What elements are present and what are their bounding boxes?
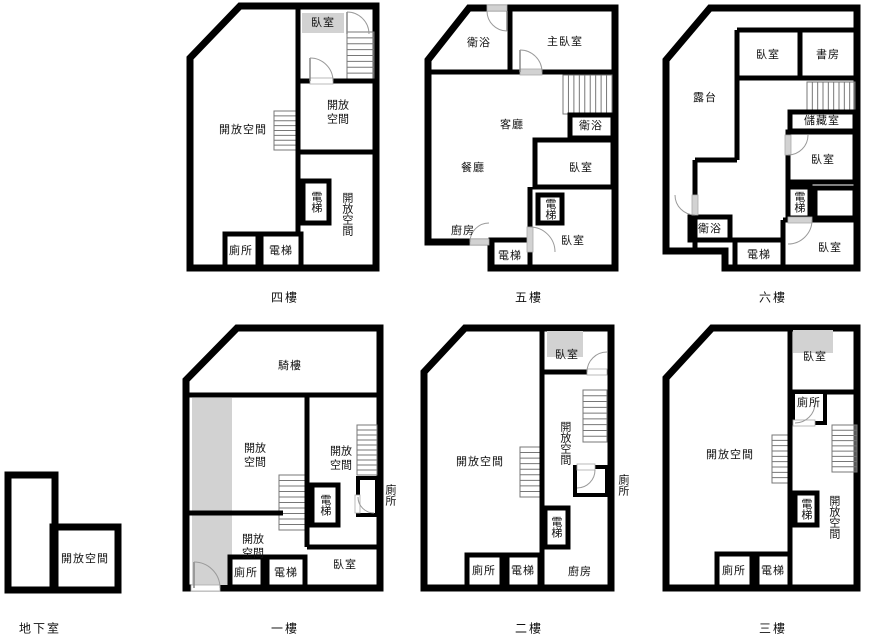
floor-name-6f: 六樓 xyxy=(759,289,787,306)
floorplan-3f-drawing xyxy=(661,323,876,593)
floor-name-1f: 一樓 xyxy=(271,620,299,637)
room-label-bedroom-mid: 臥室 xyxy=(811,153,835,167)
room-label-elevator-shaft: 電梯 xyxy=(799,498,813,520)
rooms-5f xyxy=(491,115,613,268)
room-label-kitchen: 廚房 xyxy=(451,224,475,238)
room-label-open-right-top: 開放空間 xyxy=(325,98,351,126)
room-label-open-right: 開放空間 xyxy=(328,444,354,472)
room-label-toilet-right: 廁所 xyxy=(383,484,397,506)
room-label-elevator: 電梯 xyxy=(269,244,293,258)
floorplan-sheet: 臥室 開放空間 開放空間 電梯 開放空間 廁所 電梯 四樓 xyxy=(0,0,889,643)
room-label-kitchen: 廚房 xyxy=(568,565,592,579)
room-label-toilet: 廁所 xyxy=(229,244,253,258)
room-label-open: 開放空間 xyxy=(61,552,109,566)
room-label-toilet: 廁所 xyxy=(722,564,746,578)
stairs-1f-center xyxy=(279,475,307,530)
stairs-3f-right xyxy=(832,425,857,472)
floorplan-basement: 開放空間 xyxy=(3,470,138,598)
floor-name-basement: 地下室 xyxy=(19,620,61,637)
room-label-bedroom-mid: 臥室 xyxy=(569,161,593,175)
room-label-bedroom-top: 臥室 xyxy=(756,48,780,62)
stairs-4f-topright xyxy=(347,32,374,79)
room-label-open-right: 開放空間 xyxy=(827,495,841,539)
room-label-bath: 衛浴 xyxy=(698,222,722,236)
room-label-terrace: 露台 xyxy=(693,91,717,105)
stairs-4f-center xyxy=(274,111,298,150)
room-label-elevator: 電梯 xyxy=(498,249,522,263)
floorplan-basement-drawing xyxy=(3,470,138,598)
room-label-open-upper: 開放空間 xyxy=(242,441,268,469)
room-label-toilet-top: 廁所 xyxy=(797,396,821,410)
room-label-toilet: 廁所 xyxy=(472,564,496,578)
stairs-6f-right xyxy=(807,82,855,110)
room-label-elevator: 電梯 xyxy=(747,248,771,262)
stairs-2f-right xyxy=(583,390,607,442)
room-label-bedroom: 臥室 xyxy=(333,558,357,572)
floorplan-3f: 臥室 廁所 開放空間 開放空間 電梯 廁所 電梯 xyxy=(661,323,876,593)
stairs-2f-center xyxy=(520,447,542,497)
floorplan-2f-drawing xyxy=(419,323,634,593)
room-label-storage: 儲藏室 xyxy=(804,114,840,128)
room-label-open-left: 開放空間 xyxy=(706,448,754,462)
toilet-right-room xyxy=(358,478,377,515)
room-label-open-right-bottom: 開放空間 xyxy=(340,192,354,236)
room-label-arcade: 騎樓 xyxy=(278,359,302,373)
room-label-bath-top: 衛浴 xyxy=(467,36,491,50)
room-label-bedroom: 臥室 xyxy=(803,350,827,364)
stairs-3f-center xyxy=(772,435,790,483)
room-label-elevator-shaft: 電梯 xyxy=(543,198,557,220)
stairs-1f-right xyxy=(357,425,377,475)
floor-name-5f: 五樓 xyxy=(515,289,543,306)
room-label-elevator-shaft: 電梯 xyxy=(549,516,563,538)
floor-name-3f: 三樓 xyxy=(759,620,787,637)
room-label-elevator-shaft: 電梯 xyxy=(792,191,806,213)
floorplan-5f: 衛浴 主臥室 客廳 餐廳 衛浴 臥室 電梯 廚房 電梯 臥室 xyxy=(423,2,623,272)
floor-name-4f: 四樓 xyxy=(271,289,299,306)
room-label-toilet-right: 廁所 xyxy=(616,474,630,496)
stairs-5f-topright xyxy=(563,75,612,114)
floorplan-6f-drawing xyxy=(661,2,863,272)
room-label-open-left: 開放空間 xyxy=(456,455,504,469)
room-label-bedroom: 臥室 xyxy=(555,348,579,362)
room-label-elevator-shaft: 電梯 xyxy=(318,494,332,516)
room-label-elevator: 電梯 xyxy=(761,564,785,578)
room-label-open-left: 開放空間 xyxy=(219,123,267,137)
room-label-elevator-shaft: 電梯 xyxy=(309,191,323,213)
room-label-toilet: 廁所 xyxy=(234,566,258,580)
floorplan-2f: 臥室 開放空間 廁所 開放空間 電梯 廚房 廁所 電梯 xyxy=(419,323,634,593)
room-label-master-bedroom: 主臥室 xyxy=(547,35,583,49)
floorplan-4f: 臥室 開放空間 開放空間 電梯 開放空間 廁所 電梯 xyxy=(186,2,381,272)
room-label-open-right: 開放空間 xyxy=(558,421,572,465)
room-label-bedroom-bottom: 臥室 xyxy=(561,234,585,248)
floor-name-2f: 二樓 xyxy=(515,620,543,637)
room-label-bedroom-bottom: 臥室 xyxy=(818,241,842,255)
room-label-elevator: 電梯 xyxy=(274,566,298,580)
room-label-bedroom: 臥室 xyxy=(311,16,335,30)
gray-strip xyxy=(192,398,232,585)
room-label-study: 書房 xyxy=(816,48,840,62)
room-label-living: 客廳 xyxy=(500,118,524,132)
room-label-open-lower: 開放空間 xyxy=(240,532,266,560)
floorplan-6f: 露台 臥室 書房 儲藏室 臥室 電梯 衛浴 電梯 臥室 xyxy=(661,2,863,272)
room-label-dining: 餐廳 xyxy=(461,161,485,175)
room-label-bath-right: 衛浴 xyxy=(579,119,603,133)
room-label-elevator: 電梯 xyxy=(511,564,535,578)
floorplan-1f: 騎樓 開放空間 開放空間 開放空間 電梯 廁所 廁所 電梯 臥室 xyxy=(181,323,401,593)
